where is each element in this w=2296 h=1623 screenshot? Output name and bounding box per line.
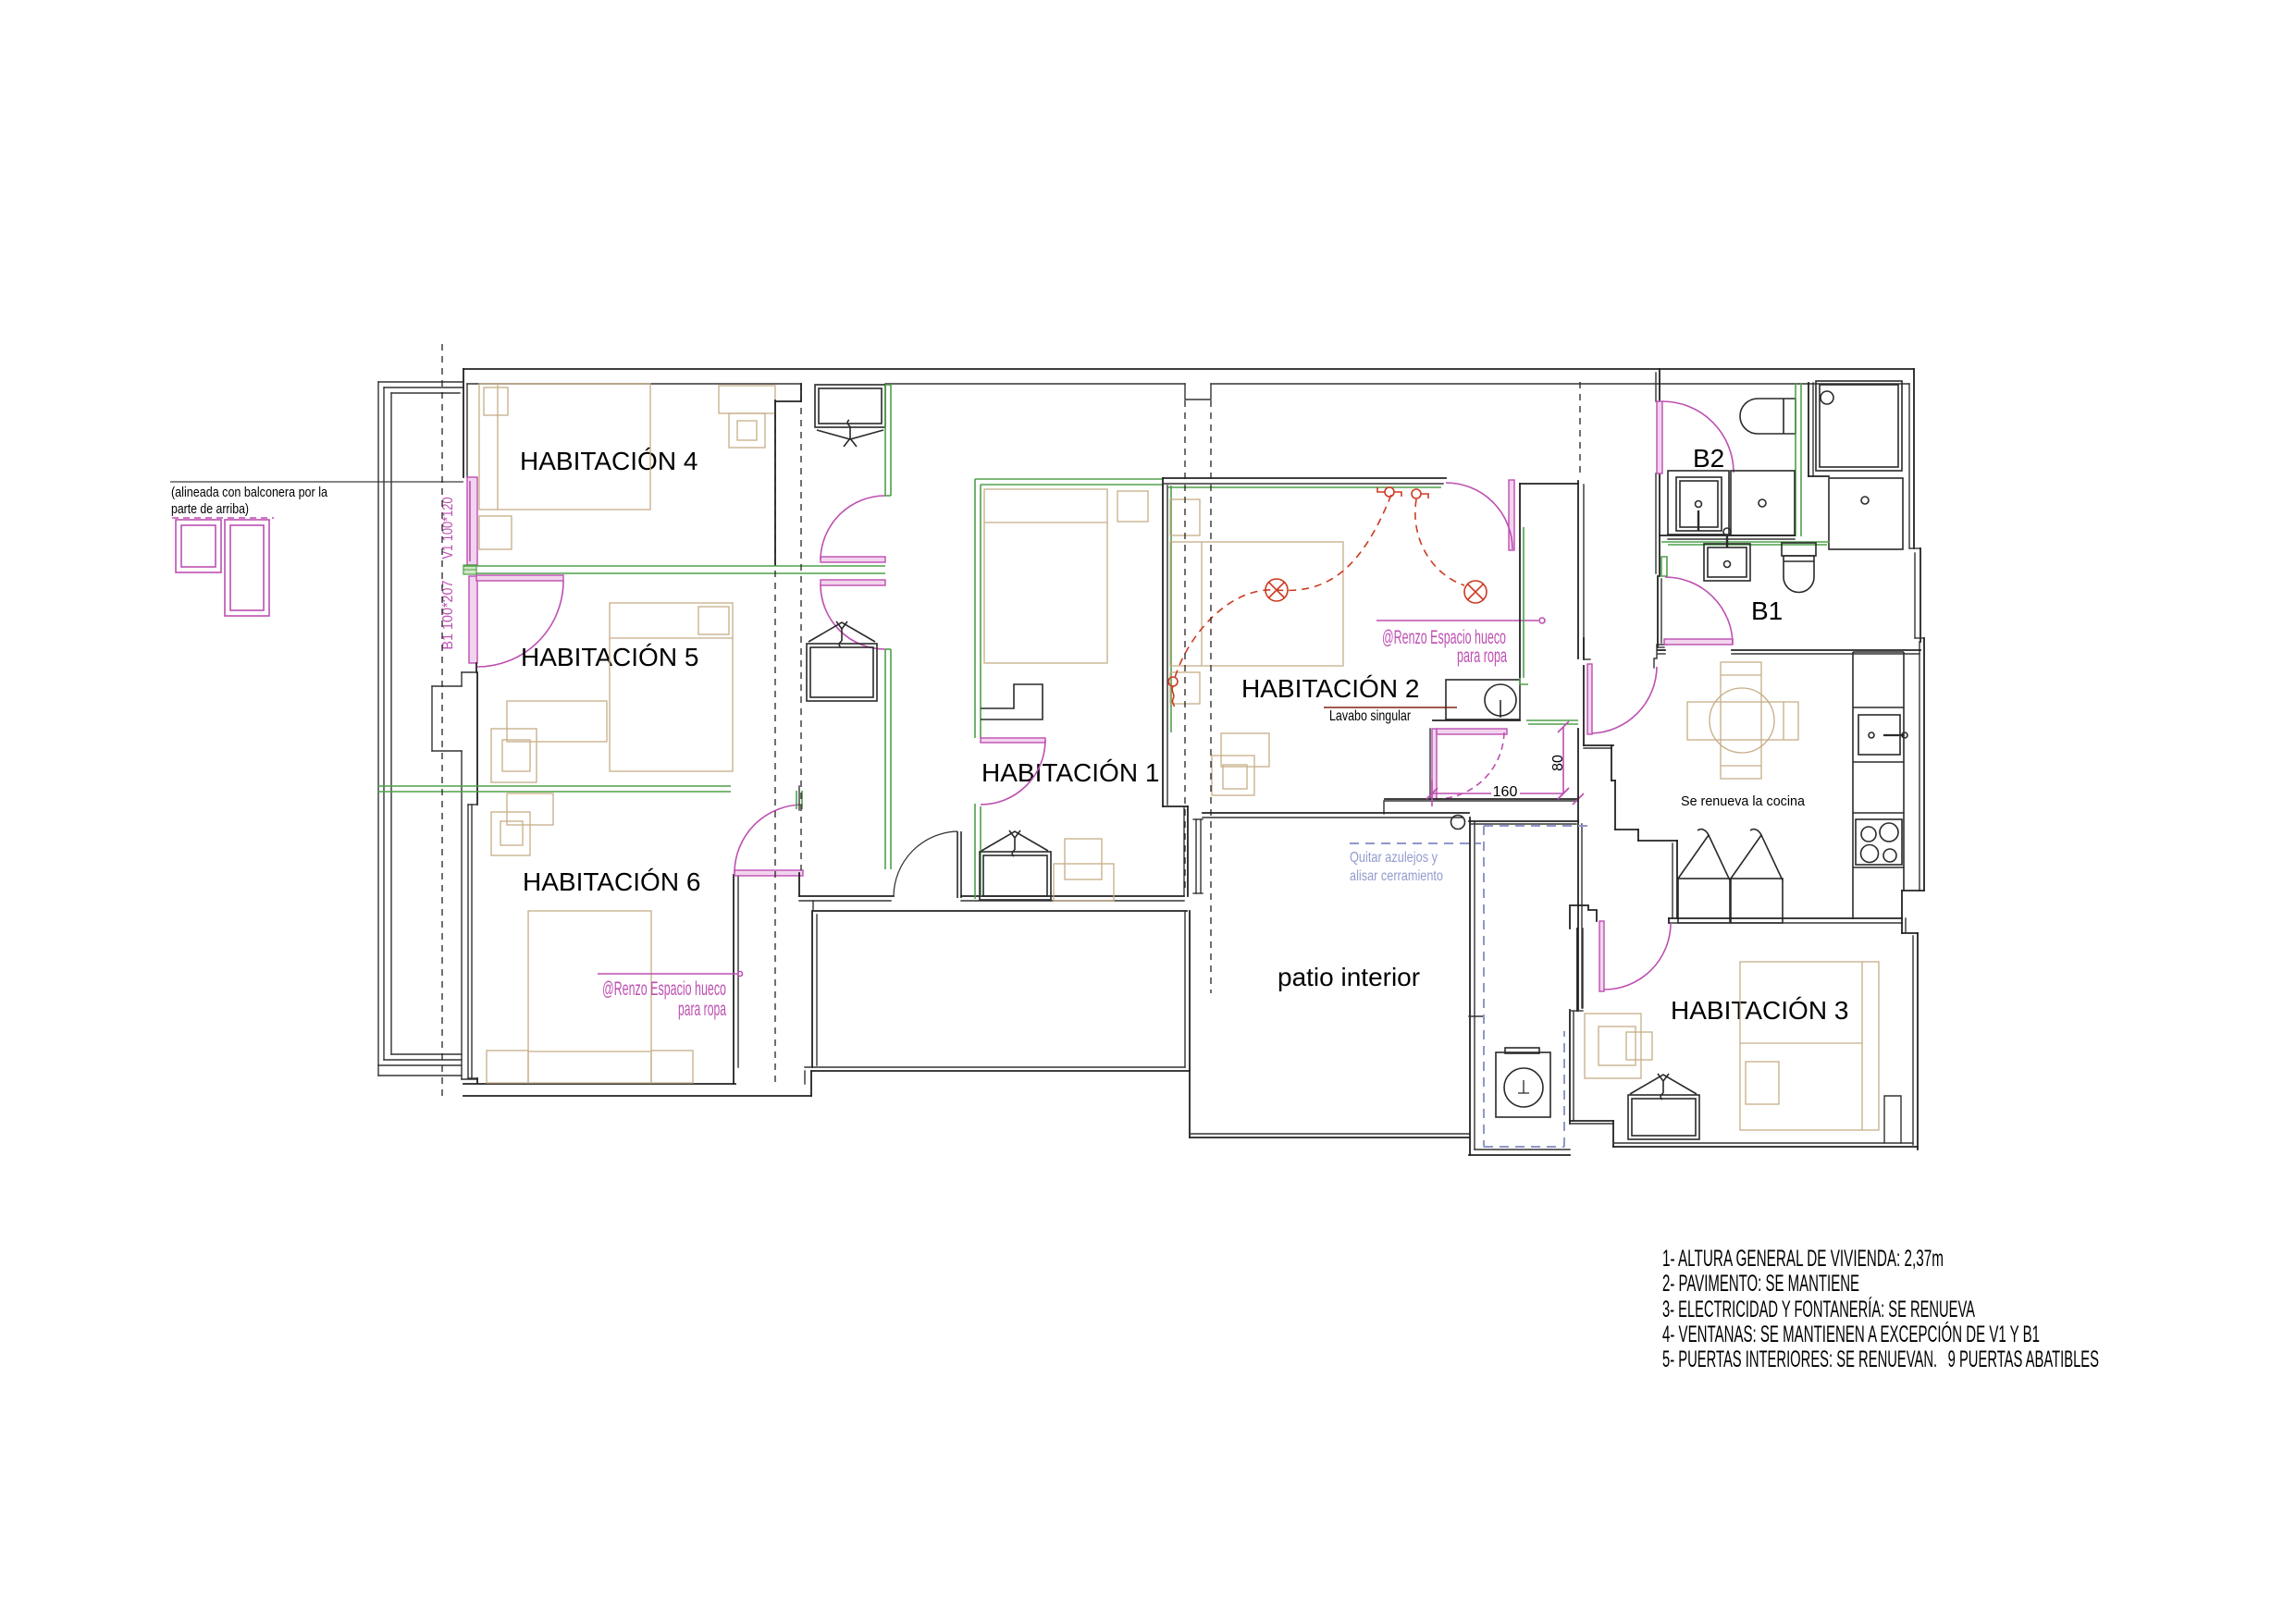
svg-text:1- ALTURA GENERAL DE VIVIENDA:: 1- ALTURA GENERAL DE VIVIENDA: 2,37m (1662, 1246, 1944, 1272)
svg-text:HABITACIÓN 1: HABITACIÓN 1 (981, 758, 1159, 787)
svg-text:Lavabo singular: Lavabo singular (1329, 708, 1412, 724)
svg-text:160: 160 (1493, 784, 1518, 800)
svg-text:Quitar azulejos y: Quitar azulejos y (1350, 850, 1438, 866)
svg-text:HABITACIÓN 4: HABITACIÓN 4 (520, 447, 697, 475)
svg-text:@Renzo Espacio hueco: @Renzo Espacio hueco (602, 978, 726, 1000)
svg-text:3- ELECTRICIDAD Y FONTANERÍA:: 3- ELECTRICIDAD Y FONTANERÍA: SE RENUEVA (1662, 1296, 1975, 1322)
svg-text:B2: B2 (1693, 444, 1724, 473)
svg-text:B1: B1 (1751, 596, 1783, 625)
svg-text:patio interior: patio interior (1278, 963, 1420, 991)
svg-text:alisar cerramiento: alisar cerramiento (1350, 868, 1443, 884)
svg-text:4- VENTANAS: SE MANTIENEN A EX: 4- VENTANAS: SE MANTIENEN A EXCEPCIÓN DE… (1662, 1321, 2040, 1347)
svg-text:para ropa: para ropa (678, 999, 726, 1020)
svg-text:5- PUERTAS INTERIORES: SE RENU: 5- PUERTAS INTERIORES: SE RENUEVAN. 9 PU… (1662, 1346, 2099, 1372)
svg-text:HABITACIÓN 3: HABITACIÓN 3 (1671, 996, 1848, 1025)
svg-text:HABITACIÓN 6: HABITACIÓN 6 (523, 867, 700, 896)
svg-text:80: 80 (1550, 755, 1566, 771)
svg-text:2- PAVIMENTO: SE MANTIENE: 2- PAVIMENTO: SE MANTIENE (1662, 1271, 1859, 1297)
svg-text:(alineada con balconera por la: (alineada con balconera por la (171, 485, 328, 500)
svg-text:parte de arriba): parte de arriba) (171, 501, 249, 517)
svg-text:Se renueva la cocina: Se renueva la cocina (1681, 793, 1806, 809)
svg-text:HABITACIÓN 2: HABITACIÓN 2 (1241, 674, 1419, 703)
svg-text:para ropa: para ropa (1457, 646, 1507, 667)
